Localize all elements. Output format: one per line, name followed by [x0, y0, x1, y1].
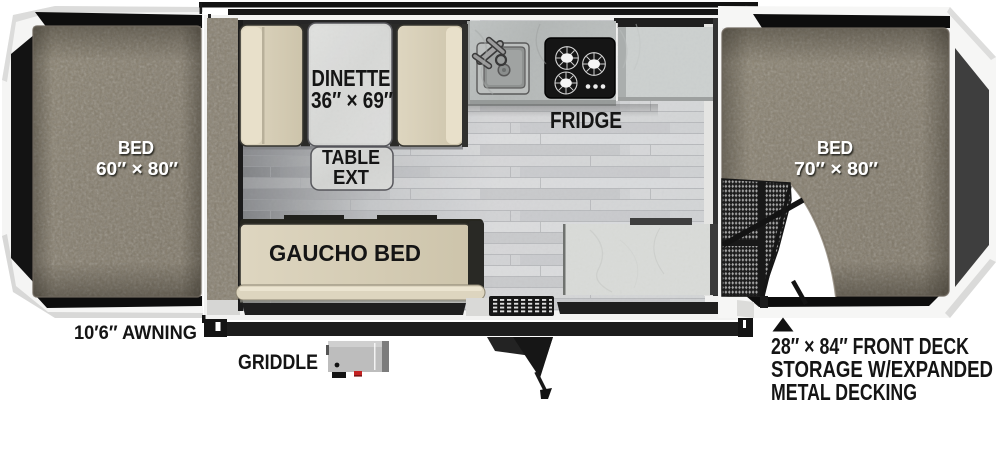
svg-text:GAUCHO BED: GAUCHO BED — [269, 240, 421, 266]
svg-text:60″ × 80″: 60″ × 80″ — [96, 159, 178, 179]
svg-text:FRIDGE: FRIDGE — [550, 107, 622, 133]
svg-text:TABLE: TABLE — [322, 147, 380, 169]
svg-text:BED: BED — [118, 138, 154, 158]
svg-text:36″ × 69″: 36″ × 69″ — [311, 87, 393, 113]
svg-text:BED: BED — [817, 138, 853, 158]
svg-text:EXT: EXT — [333, 167, 369, 189]
svg-text:70″ × 80″: 70″ × 80″ — [794, 159, 878, 179]
svg-text:METAL DECKING: METAL DECKING — [771, 379, 917, 405]
svg-text:10′6″ AWNING: 10′6″ AWNING — [74, 323, 197, 344]
svg-text:GRIDDLE: GRIDDLE — [238, 351, 318, 374]
